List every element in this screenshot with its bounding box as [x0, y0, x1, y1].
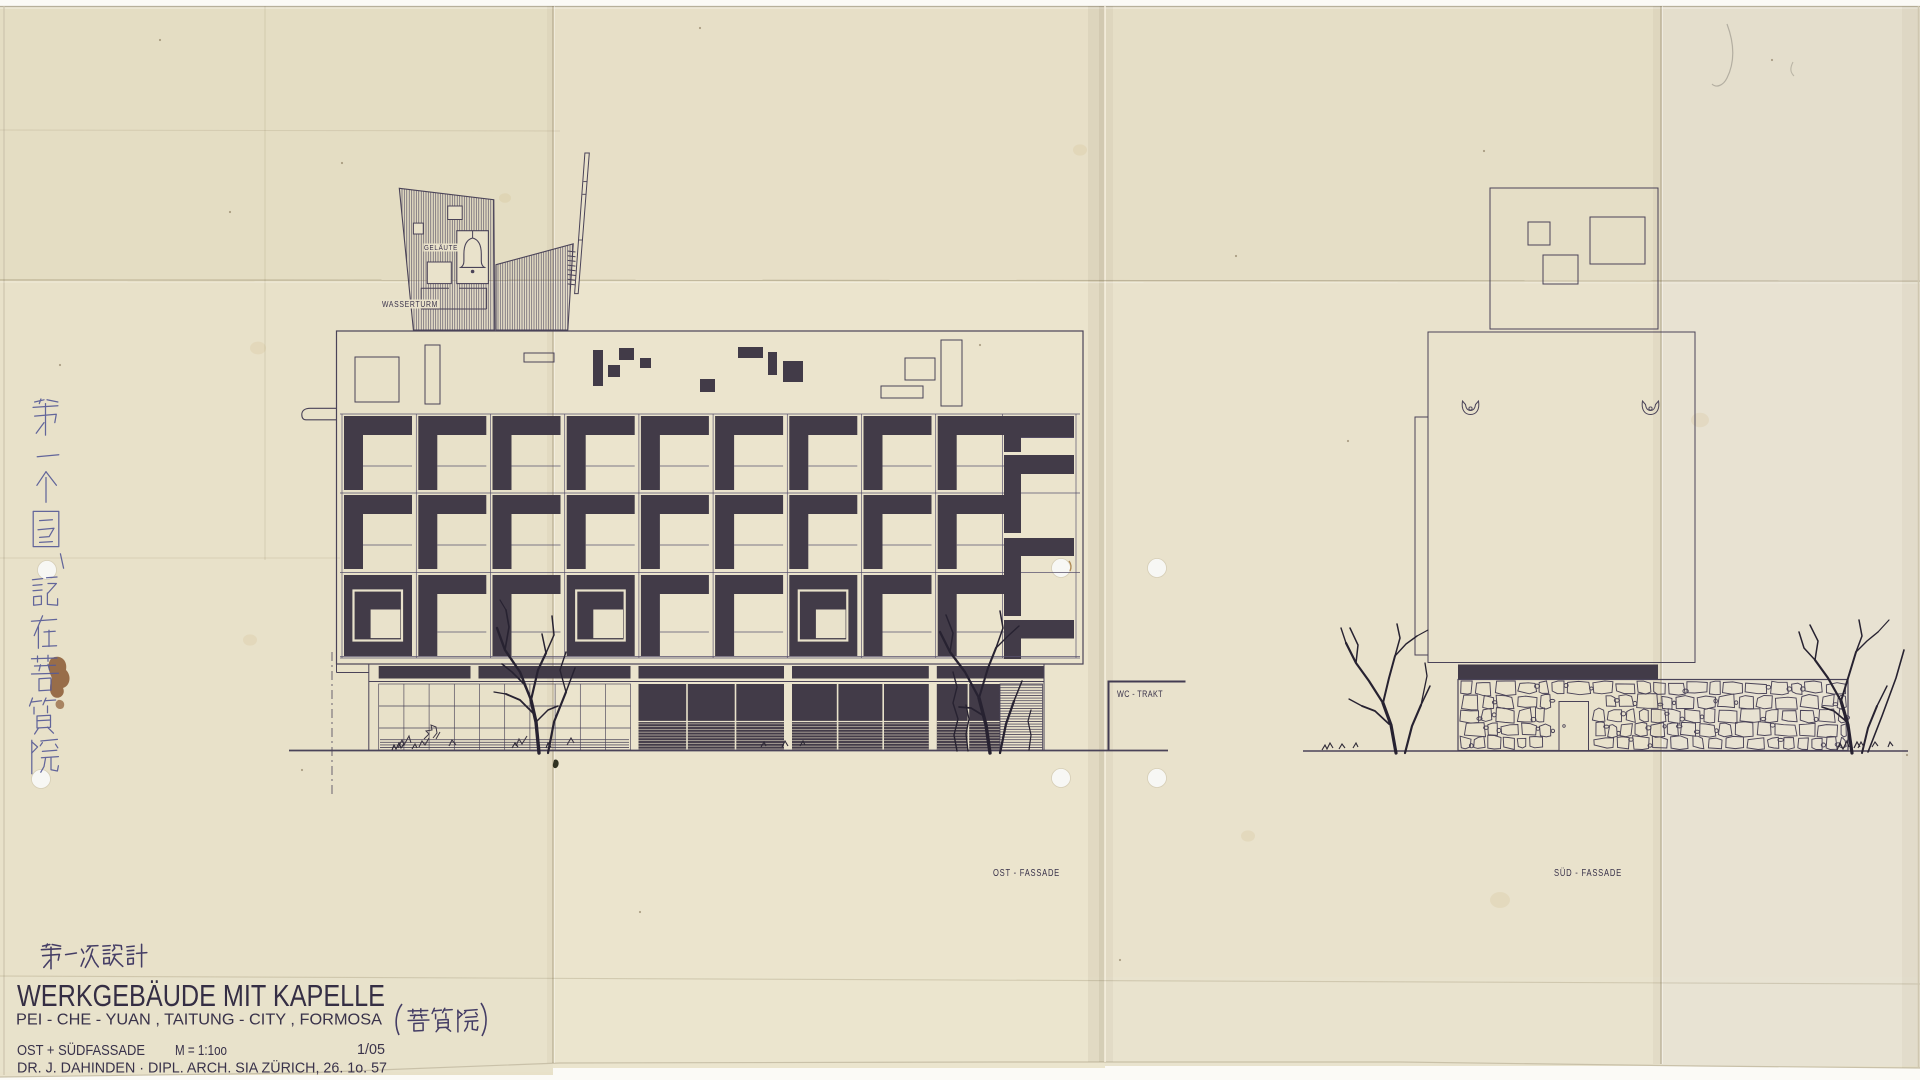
svg-text:OST - FASSADE: OST - FASSADE	[993, 868, 1060, 879]
svg-text:GELÄUTE: GELÄUTE	[424, 243, 458, 252]
svg-text:DR. J. DAHINDEN · DIPL. AR: DR. J. DAHINDEN · DIPL. ARCH. SIA ZÜRICH…	[17, 1059, 387, 1077]
svg-text:WC - TRAKT: WC - TRAKT	[1117, 689, 1163, 700]
svg-text:WERKGEBÄUDE MIT KAPELLE: WERKGEBÄUDE MIT KAPELLE	[17, 979, 385, 1013]
svg-text:SÜD - FASSADE: SÜD - FASSADE	[1554, 867, 1622, 879]
svg-text:WASSERTURM: WASSERTURM	[382, 300, 438, 309]
svg-text:M = 1:1oo: M = 1:1oo	[175, 1043, 227, 1059]
svg-text:PEI - CHE - YUAN , TAITU: PEI - CHE - YUAN , TAITUNG - CITY , FORM…	[16, 1012, 383, 1029]
svg-text:1/05: 1/05	[357, 1042, 385, 1058]
svg-text:OST + SÜDFASSADE: OST + SÜDFASSADE	[17, 1041, 145, 1059]
